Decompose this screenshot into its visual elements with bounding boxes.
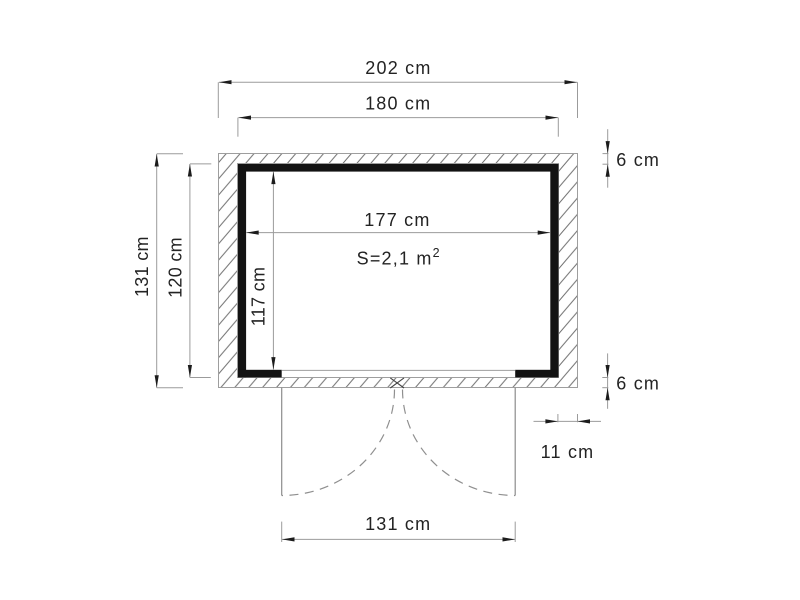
svg-text:6 cm: 6 cm — [616, 374, 660, 394]
svg-text:117 cm: 117 cm — [249, 267, 269, 327]
svg-text:11 cm: 11 cm — [541, 442, 595, 462]
svg-text:202 cm: 202 cm — [365, 58, 431, 78]
svg-text:131 cm: 131 cm — [132, 236, 152, 297]
svg-text:180 cm: 180 cm — [365, 93, 431, 113]
svg-text:S=2,1 m2: S=2,1 m2 — [357, 246, 441, 269]
svg-text:120 cm: 120 cm — [165, 237, 185, 298]
svg-text:131 cm: 131 cm — [365, 514, 431, 534]
svg-text:6 cm: 6 cm — [616, 150, 660, 170]
svg-text:177 cm: 177 cm — [364, 210, 430, 230]
